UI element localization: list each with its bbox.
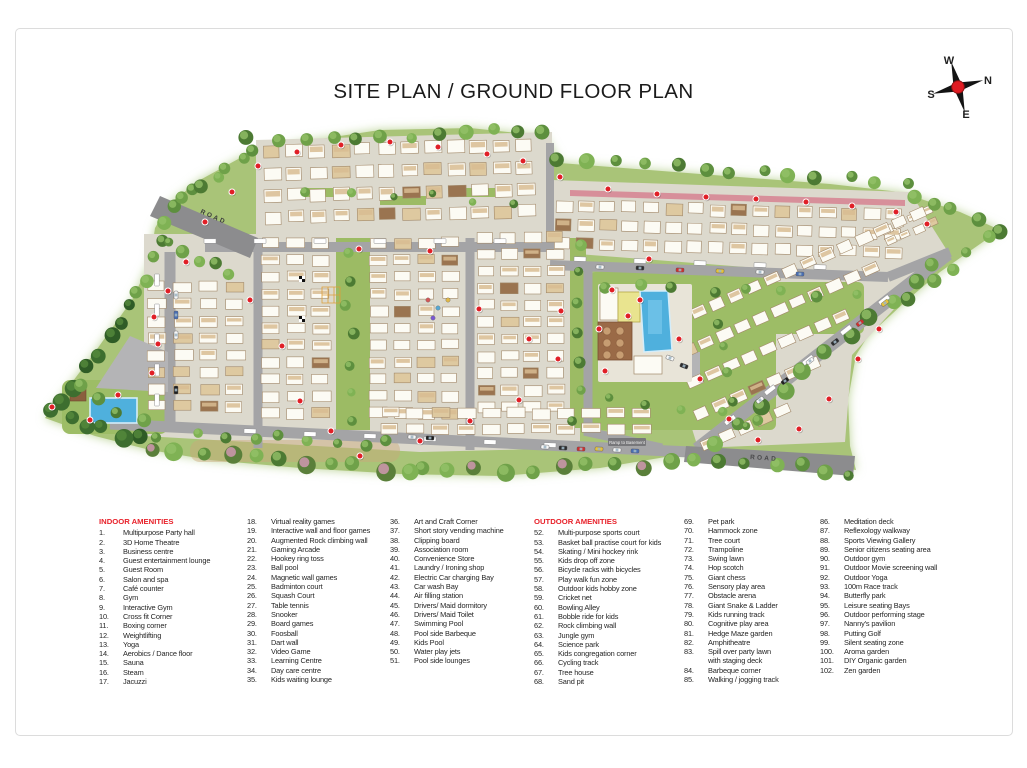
legend-item: 60.Bowling Alley — [534, 603, 684, 612]
legend-item: 88.Sports Viewing Gallery — [820, 536, 980, 545]
legend-item: 25.Badminton court — [247, 582, 390, 591]
legend-item-number: 1. — [99, 528, 120, 537]
legend-item: 48.Pool side Barbeque — [390, 629, 534, 638]
legend-item-label: Outdoor kids hobby zone — [558, 584, 684, 593]
legend-item-number: 3. — [99, 547, 120, 556]
legend-item-number: 76. — [684, 582, 705, 591]
legend-item: 79.Kids running track — [684, 610, 820, 619]
legend-item: 35.Kids waiting lounge — [247, 675, 390, 684]
legend-item-number: 19. — [247, 526, 268, 535]
legend-item: 92.Outdoor Yoga — [820, 573, 980, 582]
legend-item: 85.Walking / jogging track — [684, 675, 820, 684]
compass-label-w: W — [944, 55, 955, 67]
legend-item-number: 20. — [247, 536, 268, 545]
legend-item-label: Outdoor gym — [844, 554, 980, 563]
legend-item: 12.Weightlifting — [99, 631, 247, 640]
legend-item-label: Pet park — [708, 517, 820, 526]
legend-item-label: Clipping board — [414, 536, 534, 545]
legend-item-label: Leisure seating Bays — [844, 601, 980, 610]
legend-item-number: 91. — [820, 563, 841, 572]
legend-item: 78.Giant Snake & Ladder — [684, 601, 820, 610]
legend-item-number: 31. — [247, 638, 268, 647]
legend-column: 36.Art and Craft Corner37.Short story ve… — [390, 517, 534, 666]
legend-item-number: 33. — [247, 656, 268, 665]
legend-column: OUTDOOR AMENITIES52.Multi-purpose sports… — [534, 517, 684, 686]
legend-item-number: 100. — [820, 647, 841, 656]
legend-item-label: Interactive wall and floor games — [271, 526, 390, 535]
legend-column: INDOOR AMENITIES1.Multipurpose Party hal… — [99, 517, 247, 686]
legend-item-label: Tree house — [558, 668, 684, 677]
legend-item-label: 3D Home Theatre — [123, 538, 247, 547]
legend-item-label: Senior citizens seating area — [844, 545, 980, 554]
legend-item-number: 8. — [99, 593, 120, 602]
legend-item-label: 100m Race track — [844, 582, 980, 591]
legend-item-label: Basket ball practise court for kids — [558, 538, 684, 547]
legend-item: 5.Guest Room — [99, 565, 247, 574]
legend-item-label: Swimming Pool — [414, 619, 534, 628]
legend-item: 81.Hedge Maze garden — [684, 629, 820, 638]
legend-item-label: Kids running track — [708, 610, 820, 619]
legend-item-label: Board games — [271, 619, 390, 628]
legend-item-number: 94. — [820, 591, 841, 600]
legend-item-label: Pool side Barbeque — [414, 629, 534, 638]
legend-item: 64.Science park — [534, 640, 684, 649]
legend-item-number: 46. — [390, 610, 411, 619]
legend-item-number: 56. — [534, 565, 555, 574]
legend-item-label: Hammock zone — [708, 526, 820, 535]
legend-item-label: Video Game — [271, 647, 390, 656]
legend-item-label: Aroma garden — [844, 647, 980, 656]
legend-item: 37.Short story vending machine — [390, 526, 534, 535]
legend-item: 67.Tree house — [534, 668, 684, 677]
legend-item-number: 23. — [247, 563, 268, 572]
legend-item-number: 36. — [390, 517, 411, 526]
legend-item: 2.3D Home Theatre — [99, 538, 247, 547]
legend-item-number: 38. — [390, 536, 411, 545]
legend-item-number: 72. — [684, 545, 705, 554]
legend-item-label: Amphitheatre — [708, 638, 820, 647]
legend-item-label: Sand pit — [558, 677, 684, 686]
legend-item-label: Foosball — [271, 629, 390, 638]
legend-item: 54.Skating / Mini hockey rink — [534, 547, 684, 556]
legend-item-number: 99. — [820, 638, 841, 647]
legend-item: 6.Salon and spa — [99, 575, 247, 584]
legend-item-label: Bowling Alley — [558, 603, 684, 612]
legend-item-number: 60. — [534, 603, 555, 612]
legend-item-label: Cycling track — [558, 658, 684, 667]
legend-item-label: Play walk fun zone — [558, 575, 684, 584]
legend-item-label: Yoga — [123, 640, 247, 649]
legend-item: 11.Boxing corner — [99, 621, 247, 630]
legend-item-label: Learning Centre — [271, 656, 390, 665]
legend-item: 94.Butterfly park — [820, 591, 980, 600]
legend-item-label: Swing lawn — [708, 554, 820, 563]
legend-item-label: Snooker — [271, 610, 390, 619]
legend-item: 19.Interactive wall and floor games — [247, 526, 390, 535]
legend-item-label: Weightlifting — [123, 631, 247, 640]
legend-item-label: Ball pool — [271, 563, 390, 572]
legend-item-label: Multipurpose Party hall — [123, 528, 247, 537]
legend-item: 72.Trampoline — [684, 545, 820, 554]
legend-item: 75.Giant chess — [684, 573, 820, 582]
legend-item-label: Bobble ride for kids — [558, 612, 684, 621]
legend-item: 39.Association room — [390, 545, 534, 554]
legend-item-number: 45. — [390, 601, 411, 610]
legend-item-number: 40. — [390, 554, 411, 563]
legend-item-label: Water play jets — [414, 647, 534, 656]
legend-item: 46.Drivers/ Maid Toilet — [390, 610, 534, 619]
legend-item-label: Car wash Bay — [414, 582, 534, 591]
legend-item-number: 44. — [390, 591, 411, 600]
legend-item-label: Multi-purpose sports court — [558, 528, 684, 537]
legend-item-number: 54. — [534, 547, 555, 556]
legend-item-label: Cross fit Corner — [123, 612, 247, 621]
legend-item-label: Butterfly park — [844, 591, 980, 600]
legend-item-label: Sensory play area — [708, 582, 820, 591]
legend-item-label: Cricket net — [558, 593, 684, 602]
legend-item: 98.Putting Golf — [820, 629, 980, 638]
legend-column: 69.Pet park70.Hammock zone71.Tree court7… — [684, 517, 820, 684]
legend-item-number: 41. — [390, 563, 411, 572]
legend-item-label: Hookey ring toss — [271, 554, 390, 563]
legend-item: 47.Swimming Pool — [390, 619, 534, 628]
legend: INDOOR AMENITIES1.Multipurpose Party hal… — [99, 517, 980, 686]
legend-item-label: Kids Pool — [414, 638, 534, 647]
legend-item-label: Guest entertainment lounge — [123, 556, 247, 565]
legend-item: 3.Business centre — [99, 547, 247, 556]
legend-item-number: 2. — [99, 538, 120, 547]
legend-item: 22.Hookey ring toss — [247, 554, 390, 563]
legend-item: 36.Art and Craft Corner — [390, 517, 534, 526]
legend-item-label: Nanny's pavilion — [844, 619, 980, 628]
legend-item-label: Steam — [123, 668, 247, 677]
legend-item: 82.Amphitheatre — [684, 638, 820, 647]
legend-item-label: Salon and spa — [123, 575, 247, 584]
legend-item: 42.Electric Car charging Bay — [390, 573, 534, 582]
legend-item: 80.Cognitive play area — [684, 619, 820, 628]
legend-item-label: Sauna — [123, 658, 247, 667]
legend-item-number: 30. — [247, 629, 268, 638]
legend-item-label: Table tennis — [271, 601, 390, 610]
legend-item-number: 32. — [247, 647, 268, 656]
legend-item-label: Boxing corner — [123, 621, 247, 630]
legend-item: 49.Kids Pool — [390, 638, 534, 647]
legend-item: 23.Ball pool — [247, 563, 390, 572]
legend-item: 16.Steam — [99, 668, 247, 677]
legend-item-number: 70. — [684, 526, 705, 535]
legend-item: 21.Gaming Arcade — [247, 545, 390, 554]
legend-item-number: 50. — [390, 647, 411, 656]
legend-item: 89.Senior citizens seating area — [820, 545, 980, 554]
legend-item-number: 79. — [684, 610, 705, 619]
legend-item-number: 11. — [99, 621, 120, 630]
legend-item-number: 35. — [247, 675, 268, 684]
legend-column: 18.Virtual reality games19.Interactive w… — [247, 517, 390, 684]
legend-item-number: 16. — [99, 668, 120, 677]
legend-item-label: Kids drop off zone — [558, 556, 684, 565]
legend-item-number: 59. — [534, 593, 555, 602]
legend-item: 32.Video Game — [247, 647, 390, 656]
legend-item-number: 17. — [99, 677, 120, 686]
legend-item-number: 73. — [684, 554, 705, 563]
legend-item-number: 22. — [247, 554, 268, 563]
legend-item-label: Dart wall — [271, 638, 390, 647]
legend-item-label: Skating / Mini hockey rink — [558, 547, 684, 556]
legend-item-label: Outdoor Yoga — [844, 573, 980, 582]
legend-item: 73.Swing lawn — [684, 554, 820, 563]
legend-item-number: 39. — [390, 545, 411, 554]
legend-item-label: Drivers/ Maid dormitory — [414, 601, 534, 610]
ramp-label: Ramp to Basement — [608, 438, 646, 446]
legend-item: 69.Pet park — [684, 517, 820, 526]
legend-item: 4.Guest entertainment lounge — [99, 556, 247, 565]
legend-item-number: 98. — [820, 629, 841, 638]
legend-item: 59.Cricket net — [534, 593, 684, 602]
legend-item-label: Guest Room — [123, 565, 247, 574]
legend-item: 74.Hop scotch — [684, 563, 820, 572]
legend-item: 76.Sensory play area — [684, 582, 820, 591]
page-title: SITE PLAN / GROUND FLOOR PLAN — [0, 80, 1027, 104]
legend-item-label: Zen garden — [844, 666, 980, 675]
legend-item-label: Squash Court — [271, 591, 390, 600]
legend-item-number: 88. — [820, 536, 841, 545]
legend-item-label: Walking / jogging track — [708, 675, 820, 684]
legend-item-label: Tree court — [708, 536, 820, 545]
legend-item-number: 89. — [820, 545, 841, 554]
legend-item-label: Drivers/ Maid Toilet — [414, 610, 534, 619]
legend-item-number: 75. — [684, 573, 705, 582]
legend-item-number: 62. — [534, 621, 555, 630]
legend-item-label: Art and Craft Corner — [414, 517, 534, 526]
legend-item: 84.Barbeque corner — [684, 666, 820, 675]
legend-item-label: Putting Golf — [844, 629, 980, 638]
legend-item-number: 47. — [390, 619, 411, 628]
legend-item: 63.Jungle gym — [534, 631, 684, 640]
legend-outdoor-header: OUTDOOR AMENITIES — [534, 517, 684, 526]
legend-item: 57.Play walk fun zone — [534, 575, 684, 584]
legend-item-number: 14. — [99, 649, 120, 658]
legend-item-number: 42. — [390, 573, 411, 582]
legend-item-number: 43. — [390, 582, 411, 591]
legend-item-label: Obstacle arena — [708, 591, 820, 600]
legend-item-number: 7. — [99, 584, 120, 593]
legend-item-number: 80. — [684, 619, 705, 628]
legend-item-label: Hop scotch — [708, 563, 820, 572]
legend-item-label: Electric Car charging Bay — [414, 573, 534, 582]
legend-item: 56.Bicycle racks with bicycles — [534, 565, 684, 574]
legend-item: 96.Outdoor performing stage — [820, 610, 980, 619]
legend-item-label: Gym — [123, 593, 247, 602]
legend-item-number: 101. — [820, 656, 841, 665]
legend-item-number: 37. — [390, 526, 411, 535]
legend-item-number: 71. — [684, 536, 705, 545]
legend-item-label: Magnetic wall games — [271, 573, 390, 582]
legend-item: 1.Multipurpose Party hall — [99, 528, 247, 537]
legend-item-label: Kids congregation corner — [558, 649, 684, 658]
legend-item: 38.Clipping board — [390, 536, 534, 545]
legend-item-number: 48. — [390, 629, 411, 638]
legend-item-number: 18. — [247, 517, 268, 526]
legend-item: 68.Sand pit — [534, 677, 684, 686]
legend-item: 71.Tree court — [684, 536, 820, 545]
legend-item-number: 6. — [99, 575, 120, 584]
legend-item-number: 13. — [99, 640, 120, 649]
legend-item-number: 49. — [390, 638, 411, 647]
legend-item-label: Spill over party lawn with staging deck — [708, 647, 820, 666]
legend-item-label: Science park — [558, 640, 684, 649]
legend-item-number: 81. — [684, 629, 705, 638]
legend-item-label: Barbeque corner — [708, 666, 820, 675]
legend-item-number: 58. — [534, 584, 555, 593]
legend-item-number: 21. — [247, 545, 268, 554]
legend-item: 52.Multi-purpose sports court — [534, 528, 684, 537]
legend-item-number: 63. — [534, 631, 555, 640]
legend-item-number: 95. — [820, 601, 841, 610]
legend-item: 102.Zen garden — [820, 666, 980, 675]
legend-item-number: 64. — [534, 640, 555, 649]
legend-item: 41.Laundry / Ironing shop — [390, 563, 534, 572]
legend-item: 55.Kids drop off zone — [534, 556, 684, 565]
legend-item: 100.Aroma garden — [820, 647, 980, 656]
legend-item-label: Jacuzzi — [123, 677, 247, 686]
legend-item-label: Business centre — [123, 547, 247, 556]
legend-item: 28.Snooker — [247, 610, 390, 619]
legend-item-label: Bicycle racks with bicycles — [558, 565, 684, 574]
compass-label-e: E — [962, 109, 969, 121]
legend-item-label: Gaming Arcade — [271, 545, 390, 554]
legend-item-label: Trampoline — [708, 545, 820, 554]
legend-item-number: 96. — [820, 610, 841, 619]
legend-item-number: 34. — [247, 666, 268, 675]
legend-item: 18.Virtual reality games — [247, 517, 390, 526]
legend-item-number: 85. — [684, 675, 705, 684]
legend-item: 9.Interactive Gym — [99, 603, 247, 612]
legend-item-number: 65. — [534, 649, 555, 658]
legend-item: 45.Drivers/ Maid dormitory — [390, 601, 534, 610]
legend-item-label: Augmented Rock climbing wall — [271, 536, 390, 545]
legend-item: 51.Pool side lounges — [390, 656, 534, 665]
legend-item-label: Cognitive play area — [708, 619, 820, 628]
legend-item-number: 53. — [534, 538, 555, 547]
legend-item: 40.Convenience Store — [390, 554, 534, 563]
legend-item: 43.Car wash Bay — [390, 582, 534, 591]
legend-item: 7.Café counter — [99, 584, 247, 593]
legend-item-label: Outdoor performing stage — [844, 610, 980, 619]
svg-text:Ramp to Basement: Ramp to Basement — [609, 440, 646, 445]
legend-item-label: Interactive Gym — [123, 603, 247, 612]
legend-item: 50.Water play jets — [390, 647, 534, 656]
legend-item-number: 83. — [684, 647, 705, 666]
legend-item-number: 66. — [534, 658, 555, 667]
legend-item-number: 57. — [534, 575, 555, 584]
legend-item-number: 78. — [684, 601, 705, 610]
legend-item: 70.Hammock zone — [684, 526, 820, 535]
legend-item: 83.Spill over party lawn with staging de… — [684, 647, 820, 666]
legend-item-number: 9. — [99, 603, 120, 612]
legend-item-label: Giant Snake & Ladder — [708, 601, 820, 610]
legend-item-label: Day care centre — [271, 666, 390, 675]
legend-item: 33.Learning Centre — [247, 656, 390, 665]
legend-item: 14.Aerobics / Dance floor — [99, 649, 247, 658]
legend-item-number: 86. — [820, 517, 841, 526]
legend-item-number: 87. — [820, 526, 841, 535]
legend-item-number: 97. — [820, 619, 841, 628]
legend-item-label: Badminton court — [271, 582, 390, 591]
legend-item-number: 55. — [534, 556, 555, 565]
legend-item: 61.Bobble ride for kids — [534, 612, 684, 621]
legend-item-label: Kids waiting lounge — [271, 675, 390, 684]
legend-item-label: Pool side lounges — [414, 656, 534, 665]
legend-item-number: 92. — [820, 573, 841, 582]
legend-item-number: 82. — [684, 638, 705, 647]
legend-item: 53.Basket ball practise court for kids — [534, 538, 684, 547]
legend-item: 30.Foosball — [247, 629, 390, 638]
legend-item-label: Silent seating zone — [844, 638, 980, 647]
legend-item: 62.Rock climbing wall — [534, 621, 684, 630]
legend-item-label: Laundry / Ironing shop — [414, 563, 534, 572]
legend-item-number: 10. — [99, 612, 120, 621]
legend-item-number: 67. — [534, 668, 555, 677]
legend-item: 8.Gym — [99, 593, 247, 602]
legend-item: 99.Silent seating zone — [820, 638, 980, 647]
legend-item-label: Short story vending machine — [414, 526, 534, 535]
legend-item-number: 29. — [247, 619, 268, 628]
legend-item-number: 15. — [99, 658, 120, 667]
site-plan-page: ROAD ROAD Ramp to Basement W N S E SITE … — [0, 0, 1027, 768]
legend-item-number: 52. — [534, 528, 555, 537]
legend-item-number: 28. — [247, 610, 268, 619]
legend-item: 95.Leisure seating Bays — [820, 601, 980, 610]
legend-item: 27.Table tennis — [247, 601, 390, 610]
legend-item-label: Reflexology walkway — [844, 526, 980, 535]
legend-item: 77.Obstacle arena — [684, 591, 820, 600]
legend-item-label: Jungle gym — [558, 631, 684, 640]
legend-item-label: DIY Organic garden — [844, 656, 980, 665]
legend-item-number: 90. — [820, 554, 841, 563]
legend-item-label: Virtual reality games — [271, 517, 390, 526]
legend-item: 13.Yoga — [99, 640, 247, 649]
legend-item-number: 27. — [247, 601, 268, 610]
legend-item-number: 102. — [820, 666, 841, 675]
legend-item: 31.Dart wall — [247, 638, 390, 647]
legend-item-number: 51. — [390, 656, 411, 665]
legend-item-label: Café counter — [123, 584, 247, 593]
legend-item-label: Outdoor Movie screening wall — [844, 563, 980, 572]
legend-item: 65.Kids congregation corner — [534, 649, 684, 658]
legend-item-number: 84. — [684, 666, 705, 675]
legend-item-number: 12. — [99, 631, 120, 640]
legend-item-number: 26. — [247, 591, 268, 600]
legend-item: 26.Squash Court — [247, 591, 390, 600]
legend-item-label: Meditation deck — [844, 517, 980, 526]
legend-item-number: 24. — [247, 573, 268, 582]
legend-item-label: Convenience Store — [414, 554, 534, 563]
legend-item: 44.Air filling station — [390, 591, 534, 600]
legend-item-number: 69. — [684, 517, 705, 526]
legend-item-number: 61. — [534, 612, 555, 621]
legend-item: 24.Magnetic wall games — [247, 573, 390, 582]
legend-item: 93.100m Race track — [820, 582, 980, 591]
legend-item: 90.Outdoor gym — [820, 554, 980, 563]
legend-item: 17.Jacuzzi — [99, 677, 247, 686]
legend-indoor-header: INDOOR AMENITIES — [99, 517, 247, 526]
legend-item-label: Air filling station — [414, 591, 534, 600]
legend-item: 97.Nanny's pavilion — [820, 619, 980, 628]
legend-item: 101.DIY Organic garden — [820, 656, 980, 665]
legend-item: 29.Board games — [247, 619, 390, 628]
legend-item-number: 5. — [99, 565, 120, 574]
legend-item-label: Rock climbing wall — [558, 621, 684, 630]
